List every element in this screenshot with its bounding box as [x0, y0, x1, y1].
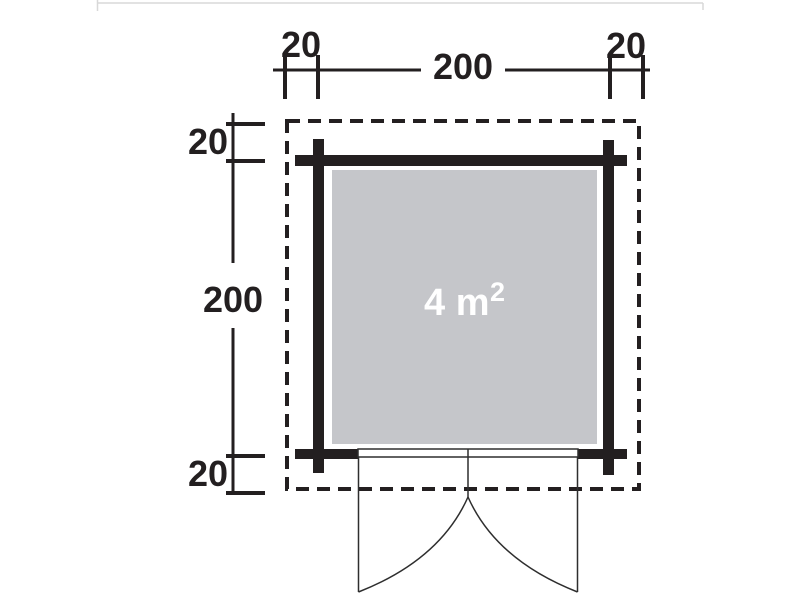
- wall-left: [313, 139, 324, 473]
- door-swing-right-arc: [468, 497, 578, 592]
- wall-top: [295, 155, 627, 166]
- dim-top-total-label: 200: [433, 46, 493, 87]
- floor-area-label: 4 m: [424, 282, 489, 324]
- wall-bottom-right-segment: [578, 449, 627, 459]
- dim-left-top-offset-label: 20: [188, 121, 228, 162]
- page-edge-line: [98, 0, 704, 11]
- dim-left-total-label: 200: [203, 279, 263, 320]
- floor-plan-image: 20 200 20 20 200 20: [0, 0, 800, 600]
- double-door: [358, 449, 578, 592]
- floor-plan-svg: 20 200 20 20 200 20: [0, 0, 800, 600]
- dim-top-left-offset-label: 20: [281, 24, 321, 65]
- dim-left-bottom-offset-label: 20: [188, 453, 228, 494]
- floor-area-superscript: 2: [490, 277, 505, 307]
- dim-top-right-offset-label: 20: [606, 25, 646, 66]
- dimension-left: 20 200 20: [188, 113, 265, 495]
- dimension-top: 20 200 20: [273, 24, 650, 99]
- wall-bottom-left-segment: [295, 449, 358, 459]
- wall-right: [603, 140, 614, 475]
- door-swing-left-arc: [359, 497, 469, 592]
